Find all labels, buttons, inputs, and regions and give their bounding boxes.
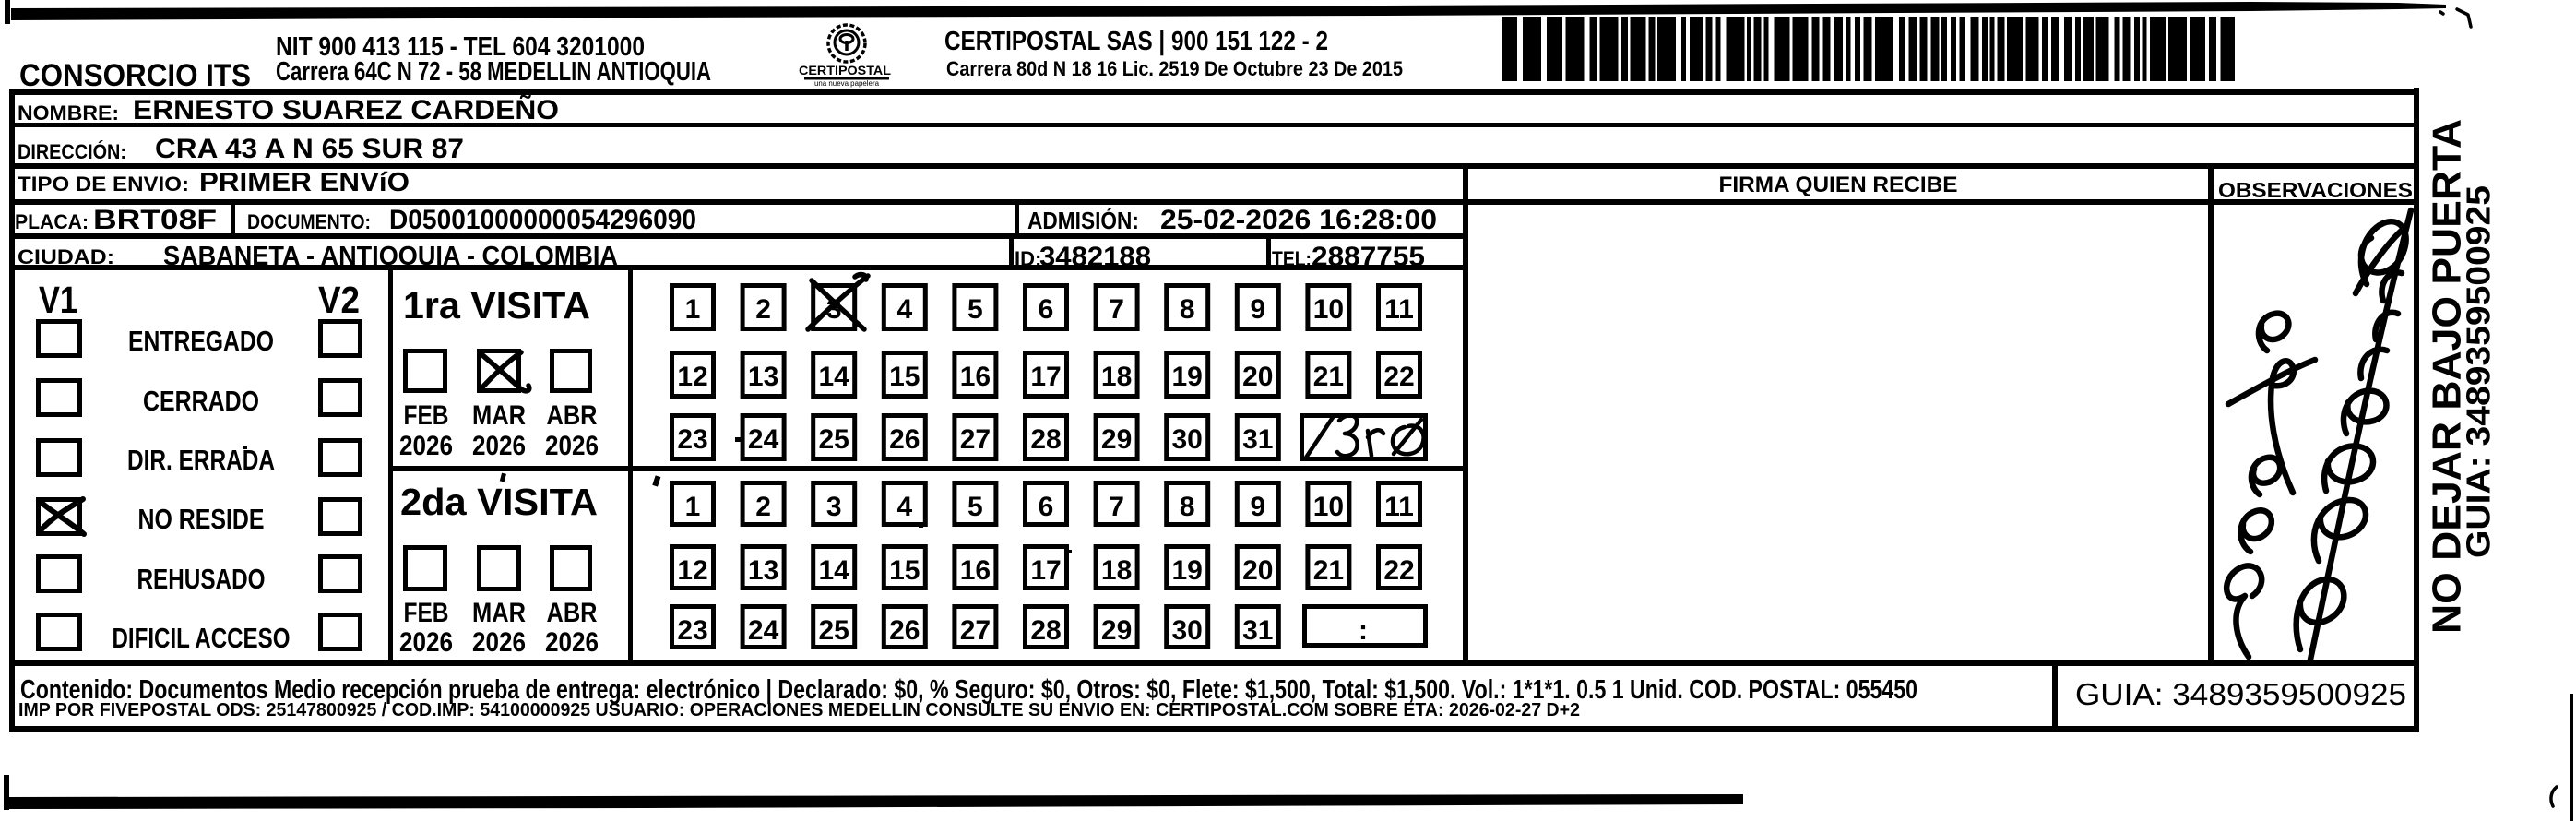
- svg-text:14: 14: [819, 362, 850, 392]
- svg-text:ABR: ABR: [547, 400, 598, 431]
- svg-text:TIPO DE ENVIO:: TIPO DE ENVIO:: [18, 173, 189, 196]
- svg-text:DIR. ERRADA: DIR. ERRADA: [127, 444, 275, 476]
- svg-text:22: 22: [1383, 555, 1414, 586]
- svg-text:21: 21: [1313, 555, 1344, 586]
- svg-text:13: 13: [748, 555, 778, 586]
- svg-text:16: 16: [960, 555, 991, 586]
- svg-text:GUIA: 3489359500925: GUIA: 3489359500925: [2460, 185, 2498, 558]
- svg-text:1: 1: [685, 294, 701, 325]
- svg-text:ERNESTO SUAREZ CARDEÑO: ERNESTO SUAREZ CARDEÑO: [133, 94, 559, 125]
- svg-text:DIRECCIÓN:: DIRECCIÓN:: [18, 140, 126, 163]
- svg-text:14: 14: [819, 555, 850, 586]
- svg-text:D05001000000054296090: D05001000000054296090: [389, 205, 696, 235]
- svg-text:9: 9: [1250, 492, 1265, 522]
- svg-text:18: 18: [1101, 555, 1132, 586]
- svg-text:3: 3: [826, 492, 842, 522]
- svg-text:V1: V1: [39, 279, 77, 321]
- svg-text:13: 13: [748, 362, 778, 392]
- svg-text:2: 2: [755, 492, 771, 522]
- svg-text:15: 15: [889, 362, 920, 392]
- svg-text:20: 20: [1242, 362, 1273, 392]
- svg-text:8: 8: [1180, 294, 1195, 325]
- svg-text:4: 4: [896, 294, 912, 325]
- svg-text:V2: V2: [318, 279, 360, 321]
- svg-text:25: 25: [819, 424, 849, 455]
- svg-text:2: 2: [755, 294, 771, 325]
- svg-text:27: 27: [960, 424, 991, 455]
- svg-text:1ra VISITA: 1ra VISITA: [403, 284, 590, 327]
- svg-text:27: 27: [960, 615, 991, 646]
- svg-text:31: 31: [1242, 424, 1273, 455]
- svg-text:2da VISITA: 2da VISITA: [400, 481, 598, 523]
- svg-text:DOCUMENTO:: DOCUMENTO:: [247, 210, 371, 233]
- svg-text:21: 21: [1313, 362, 1344, 392]
- svg-text:29: 29: [1101, 615, 1132, 646]
- svg-text:ADMISIÓN:: ADMISIÓN:: [1027, 207, 1139, 234]
- svg-text:11: 11: [1384, 492, 1414, 522]
- svg-text:7: 7: [1109, 294, 1124, 325]
- svg-text:BRT08F: BRT08F: [93, 205, 217, 235]
- svg-text:9: 9: [1250, 294, 1265, 325]
- svg-text:DIFICIL ACCESO: DIFICIL ACCESO: [113, 622, 291, 654]
- svg-text:ENTREGADO: ENTREGADO: [128, 325, 274, 357]
- svg-text:MAR: MAR: [472, 400, 526, 431]
- svg-text:ID:: ID:: [1015, 247, 1041, 270]
- svg-text:28: 28: [1030, 424, 1061, 455]
- svg-text:5: 5: [967, 492, 983, 522]
- svg-text:17: 17: [1030, 362, 1061, 392]
- svg-text:ABR: ABR: [547, 598, 598, 628]
- svg-text:FIRMA QUIEN RECIBE: FIRMA QUIEN RECIBE: [1719, 173, 1958, 197]
- svg-text:19: 19: [1172, 555, 1203, 586]
- svg-text:26: 26: [889, 615, 920, 646]
- svg-text:Carrera 64C N 72 - 58 MEDELLIN: Carrera 64C N 72 - 58 MEDELLIN ANTIOQUIA: [276, 57, 711, 87]
- svg-text::: :: [1359, 615, 1368, 646]
- svg-text:OBSERVACIONES: OBSERVACIONES: [2218, 178, 2413, 202]
- svg-text:15: 15: [889, 555, 920, 586]
- svg-text:IMP POR FIVEPOSTAL ODS: 251478: IMP POR FIVEPOSTAL ODS: 25147800925 / CO…: [18, 699, 1580, 720]
- svg-text:NOMBRE:: NOMBRE:: [18, 101, 119, 125]
- svg-text:2887755: 2887755: [1312, 242, 1425, 272]
- svg-text:2026: 2026: [545, 627, 599, 658]
- svg-text:25: 25: [819, 615, 849, 646]
- svg-text:10: 10: [1313, 294, 1344, 325]
- svg-text:8: 8: [1180, 492, 1195, 522]
- svg-text:10: 10: [1313, 492, 1344, 522]
- svg-text:2026: 2026: [399, 627, 453, 658]
- svg-text:12: 12: [677, 362, 707, 392]
- svg-text:17: 17: [1030, 555, 1061, 586]
- svg-text:Carrera 80d N 18 16 Lic. 2519: Carrera 80d N 18 16 Lic. 2519 De Octubre…: [946, 57, 1403, 80]
- svg-text:20: 20: [1242, 555, 1273, 586]
- svg-text:6: 6: [1039, 492, 1054, 522]
- svg-text:una nueva papelera: una nueva papelera: [814, 79, 880, 88]
- svg-text:FEB: FEB: [404, 400, 449, 431]
- svg-text:16: 16: [960, 362, 991, 392]
- svg-text:GUIA: 3489359500925: GUIA: 3489359500925: [2075, 677, 2406, 711]
- svg-text:11: 11: [1384, 294, 1414, 325]
- svg-text:31: 31: [1242, 615, 1273, 646]
- svg-text:22: 22: [1383, 362, 1414, 392]
- svg-text:29: 29: [1101, 424, 1132, 455]
- svg-text:FEB: FEB: [404, 598, 449, 628]
- svg-text:12: 12: [677, 555, 707, 586]
- svg-text:7: 7: [1109, 492, 1124, 522]
- svg-text:30: 30: [1172, 424, 1203, 455]
- svg-text:30: 30: [1172, 615, 1203, 646]
- svg-text:CONSORCIO ITS: CONSORCIO ITS: [19, 58, 251, 93]
- svg-text:5: 5: [967, 294, 983, 325]
- svg-text:PRIMER ENVíO: PRIMER ENVíO: [199, 168, 410, 197]
- svg-text:23: 23: [677, 615, 707, 646]
- svg-text:3482188: 3482188: [1039, 242, 1151, 272]
- svg-text:CRA 43 A N 65 SUR 87: CRA 43 A N 65 SUR 87: [155, 134, 464, 164]
- svg-text:18: 18: [1101, 362, 1132, 392]
- svg-text:PLACA:: PLACA:: [15, 210, 89, 233]
- svg-text:24: 24: [748, 615, 779, 646]
- svg-text:SABANETA - ANTIOQUIA - COLOMBI: SABANETA - ANTIOQUIA - COLOMBIA: [163, 242, 618, 271]
- svg-text:2026: 2026: [472, 431, 526, 461]
- svg-text:2026: 2026: [399, 431, 453, 461]
- svg-text:CERTIPOSTAL SAS | 900 151 122: CERTIPOSTAL SAS | 900 151 122 - 2: [944, 27, 1328, 56]
- svg-text:2026: 2026: [472, 627, 526, 658]
- svg-text:19: 19: [1172, 362, 1203, 392]
- svg-text:MAR: MAR: [472, 598, 526, 628]
- svg-text:2026: 2026: [545, 431, 599, 461]
- svg-text:25-02-2026 16:28:00: 25-02-2026 16:28:00: [1160, 205, 1437, 235]
- svg-text:CERRADO: CERRADO: [143, 385, 259, 417]
- svg-text:1: 1: [685, 492, 701, 522]
- svg-text:24: 24: [748, 424, 779, 455]
- svg-text:CIUDAD:: CIUDAD:: [18, 245, 114, 268]
- svg-text:TEL:: TEL:: [1272, 247, 1312, 270]
- svg-text:NO RESIDE: NO RESIDE: [138, 503, 265, 535]
- svg-text:6: 6: [1039, 294, 1054, 325]
- svg-text:26: 26: [889, 424, 920, 455]
- svg-text:REHUSADO: REHUSADO: [137, 563, 266, 595]
- svg-text:23: 23: [677, 424, 707, 455]
- svg-text:CERTIPOSTAL: CERTIPOSTAL: [799, 64, 891, 77]
- svg-text:28: 28: [1030, 615, 1061, 646]
- svg-text:4: 4: [896, 492, 912, 522]
